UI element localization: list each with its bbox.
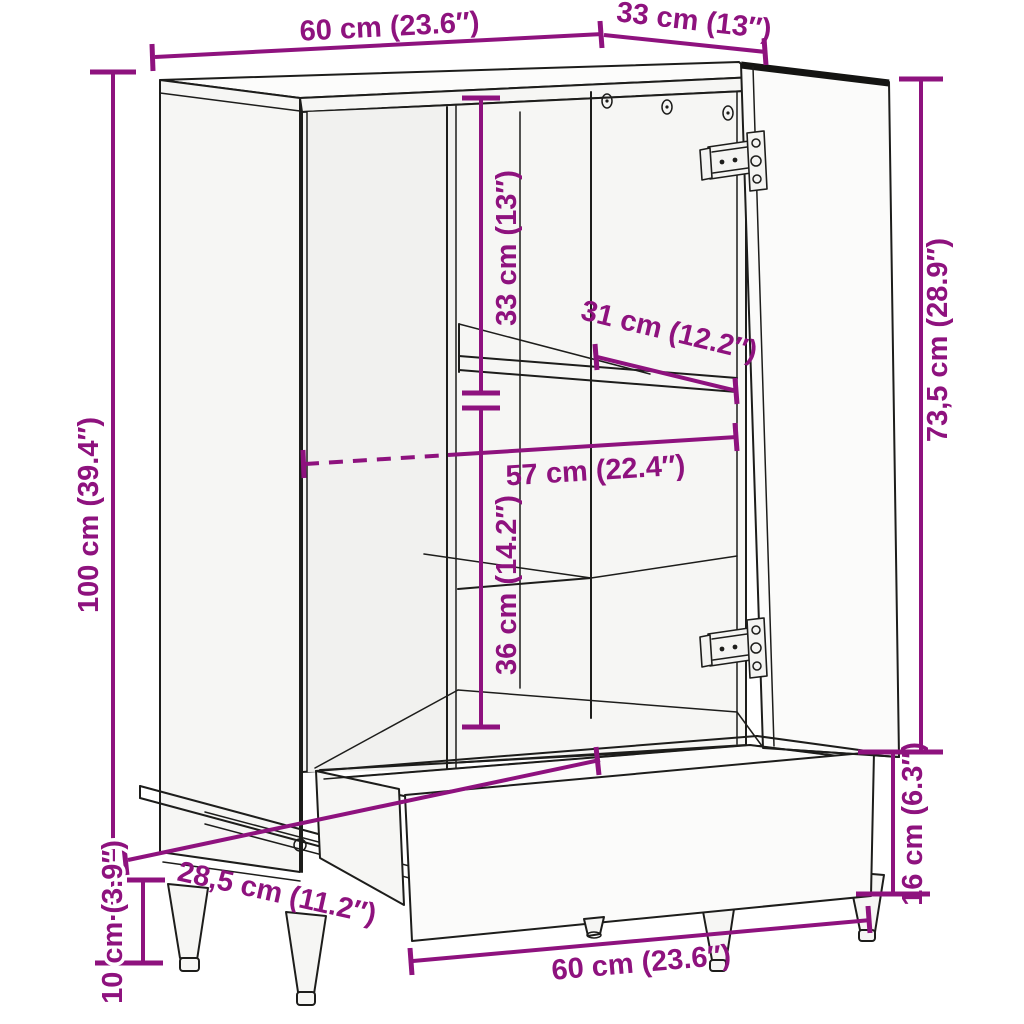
dim-label-total-height: 100 cm (39.4″) <box>73 417 105 613</box>
hinge-dot <box>733 158 738 163</box>
dim-top-width: 60 cm (23.6″) <box>152 6 603 71</box>
left-side-panel <box>160 80 300 872</box>
leg-back-left-foot <box>180 958 199 971</box>
screw-dot <box>726 111 729 114</box>
hinge-plate <box>747 131 767 191</box>
dim-label-lower-inner-height: 36 cm (14.2″) <box>491 495 523 675</box>
leg-front-left <box>286 912 326 994</box>
dim-label-drawer-front-height: 16 cm (6.3″) <box>897 742 929 906</box>
dim-label-upper-inner-height: 33 cm (13″) <box>491 170 523 326</box>
screw-dot <box>605 99 608 102</box>
hinge-dot <box>720 647 725 652</box>
leg-back-left <box>168 884 208 960</box>
cabinet-dimension-diagram: 60 cm (23.6″) 33 cm (13″) 100 cm (39.4″)… <box>0 0 1024 1024</box>
hinge-cup <box>700 148 712 180</box>
diagram-canvas: 60 cm (23.6″) 33 cm (13″) 100 cm (39.4″)… <box>0 0 1024 1024</box>
hinge-dot <box>733 645 738 650</box>
drawer-left-side <box>316 771 404 905</box>
dim-top-depth: 33 cm (13″) <box>604 0 773 65</box>
leg-front-left-foot <box>297 992 315 1005</box>
drawer-knob <box>584 917 604 936</box>
dim-leg-height: 10 cm (3.9″) <box>97 840 165 1004</box>
hinge-plate <box>747 618 767 678</box>
dim-label-door-height: 73,5 cm (28.9″) <box>922 238 954 442</box>
screw-dot <box>665 105 668 108</box>
interior-left-wall <box>307 106 456 772</box>
dim-total-height: 100 cm (39.4″) <box>73 72 163 963</box>
hinge-dot <box>720 160 725 165</box>
hinge-cup <box>700 635 712 667</box>
leg-back-right-foot <box>859 930 875 941</box>
dim-label-leg-height: 10 cm (3.9″) <box>97 840 129 1004</box>
